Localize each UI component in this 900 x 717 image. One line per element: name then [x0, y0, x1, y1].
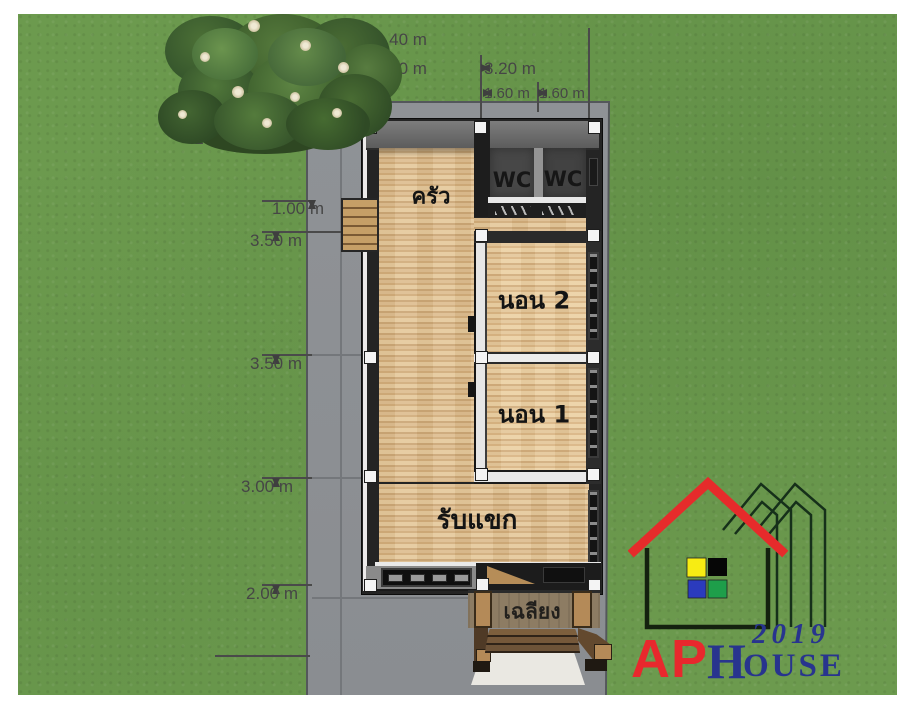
dimension-bed2-depth: 3.50 m	[268, 232, 284, 355]
outdoor-shelf	[341, 198, 379, 252]
wall-shadow	[379, 148, 474, 157]
pad-joint-line	[312, 597, 468, 599]
door-panel	[543, 567, 585, 583]
dimension-quarter-right: 1.60 m	[538, 85, 590, 101]
tree-flower	[300, 40, 311, 51]
post	[364, 351, 377, 364]
arrow-down-icon	[272, 478, 280, 487]
house-body-outline-icon	[647, 548, 768, 627]
arrow-down-icon	[272, 355, 280, 364]
window-bedroom1-icon	[588, 368, 599, 458]
dimension-half-right: 3.20 m	[481, 60, 589, 76]
dimension-bed1-depth: 3.50 m	[268, 355, 284, 478]
arrow-right-icon	[483, 89, 492, 97]
wc-right-label: WC	[544, 167, 583, 191]
window-living-icon	[588, 490, 599, 568]
dimension-porch-depth: 2.00 m	[268, 585, 284, 655]
arrow-down-icon	[272, 585, 280, 594]
house-roof-icon	[634, 483, 782, 551]
tree-flower	[290, 92, 300, 102]
arrow-right-icon	[538, 89, 547, 97]
dimension-quarter-left: 1.60 m	[483, 85, 538, 101]
logo-square-black	[708, 558, 727, 576]
dimension-living-depth: 3.00 m	[268, 478, 284, 585]
tree-flower	[262, 118, 272, 128]
bedroom-divider-wall	[474, 352, 601, 364]
porch-label: เฉลียง	[504, 596, 561, 629]
logo-graphic	[628, 458, 868, 638]
tree-flower	[338, 62, 349, 73]
tree-foliage-blob	[286, 98, 370, 150]
logo-square-blue	[688, 580, 706, 598]
pad-joint-line	[312, 477, 366, 479]
window-bedroom2-icon	[588, 252, 599, 340]
post	[475, 351, 488, 364]
porch-post	[474, 591, 492, 628]
bedroom2-top-wall	[474, 231, 601, 243]
window-slat	[388, 574, 403, 582]
stair-tread	[485, 645, 580, 653]
logo-text-year: 2019	[752, 620, 830, 649]
living-label: รับแขก	[437, 500, 518, 541]
wc-left-label: WC	[493, 168, 532, 192]
arrow-right-icon	[481, 64, 490, 72]
porch-post	[572, 591, 592, 628]
arrow-down-icon	[272, 232, 280, 241]
stair-tread	[487, 629, 578, 637]
stair-foot	[473, 661, 490, 672]
logo-text-house-initial: H	[707, 636, 746, 686]
tree-flower	[232, 86, 244, 98]
tree-flower	[200, 52, 210, 62]
logo-text-ap: AP	[631, 632, 708, 686]
window-slat	[410, 574, 425, 582]
post	[475, 468, 488, 481]
door-leaf	[468, 316, 476, 332]
door-leaf	[468, 382, 476, 397]
vent-window	[495, 206, 531, 215]
dimension-total-width: 6.40 m	[372, 31, 589, 47]
floor-plan-rendering: 6.40 m 3.20 m 3.20 m 1.60 m 1.60 m 15.00…	[0, 0, 900, 717]
post	[475, 229, 488, 242]
window-slat	[432, 574, 447, 582]
corridor-floor	[474, 218, 586, 231]
dimension-label: 3.00 m	[238, 478, 296, 495]
dimension-total-height: 15.00 m	[217, 130, 233, 656]
bedroom2-label: นอน 2	[498, 281, 570, 320]
post	[364, 470, 377, 483]
post	[474, 121, 487, 134]
back-house-outline-icon	[735, 502, 777, 627]
tree-foliage-blob	[268, 28, 346, 86]
post	[587, 468, 600, 481]
post	[364, 579, 377, 592]
stair-tread	[486, 637, 579, 645]
bedroom1-label: นอน 1	[498, 395, 570, 434]
window-wc-icon	[589, 158, 598, 186]
arrow-down-icon	[308, 200, 316, 209]
tree-flower	[178, 110, 187, 119]
logo-house-icon	[628, 458, 868, 638]
bedroom1-bottom-wall	[474, 470, 601, 484]
tree-flower	[248, 20, 260, 32]
post	[588, 121, 601, 134]
dimension-label: 1.00 m	[269, 200, 327, 217]
stair-stringer-cap	[594, 644, 612, 660]
wc-divider-wall	[534, 148, 543, 197]
vent-window	[542, 206, 577, 215]
kitchen-label: ครัว	[412, 179, 451, 214]
stair-foot	[585, 659, 607, 671]
logo-text-house-rest: OUSE	[743, 650, 845, 683]
pad-joint-line	[312, 354, 366, 356]
window-slat	[454, 574, 469, 582]
tree-flower	[332, 108, 342, 118]
logo-square-green	[708, 580, 727, 598]
post	[587, 351, 600, 364]
post	[587, 229, 600, 242]
logo-square-yellow	[687, 558, 706, 577]
dimension-corridor: 1.00 m	[304, 200, 320, 232]
